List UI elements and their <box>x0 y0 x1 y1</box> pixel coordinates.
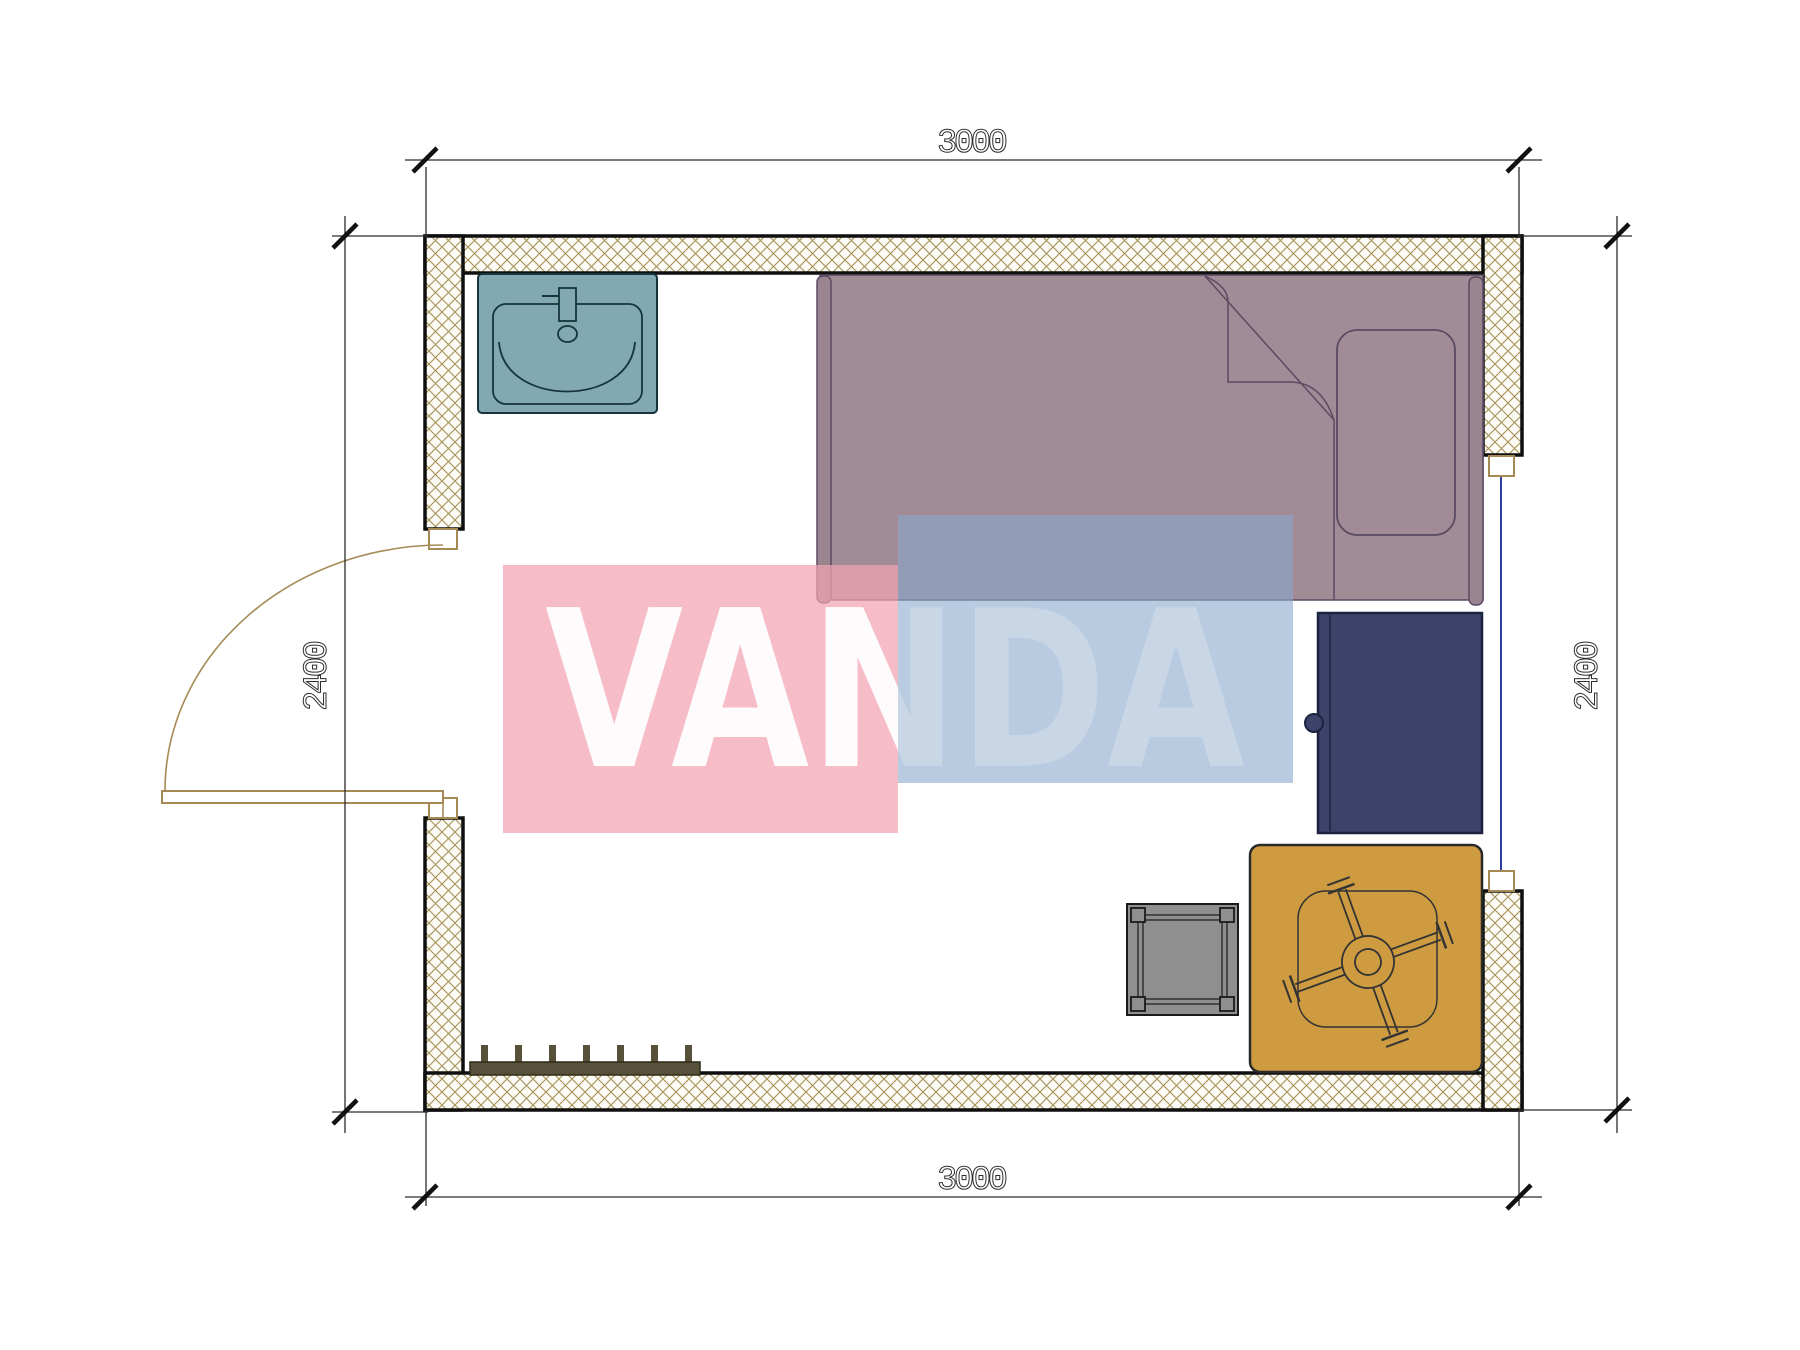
dimension-top: 3000 <box>405 125 1542 238</box>
wall-left-lower <box>425 818 463 1110</box>
dim-label-bottom: 3000 <box>937 1162 1009 1200</box>
wall-right-upper <box>1483 236 1522 455</box>
dim-label-right: 2400 <box>1570 639 1608 711</box>
radiator-fins <box>481 1045 692 1062</box>
window <box>1489 456 1514 891</box>
dimension-bottom: 3000 <box>405 1110 1542 1209</box>
wardrobe-icon <box>1305 613 1482 833</box>
stool-icon <box>1127 904 1238 1015</box>
floor-plan-drawing: 3000 3000 2400 2400 VANDA <box>0 0 1800 1350</box>
radiator-body <box>470 1062 700 1075</box>
floor-plan-canvas: 3000 3000 2400 2400 VANDA <box>0 0 1800 1350</box>
door-jamb-top <box>429 529 457 549</box>
radiator-icon <box>470 1045 700 1075</box>
wall-right-lower <box>1483 891 1522 1110</box>
wardrobe-body <box>1318 613 1482 833</box>
bed-footboard <box>817 276 831 603</box>
wardrobe-knob <box>1305 714 1323 732</box>
stool-leg <box>1131 997 1145 1011</box>
sink-faucet <box>559 288 576 321</box>
wall-bottom <box>425 1073 1522 1110</box>
bed-pillow <box>1337 330 1455 535</box>
dim-label-top: 3000 <box>937 125 1009 163</box>
watermark-text-overlay: VANDA <box>545 565 1245 818</box>
dimension-right: 2400 <box>1518 216 1632 1133</box>
bed-headboard <box>1469 277 1483 605</box>
table-icon <box>1250 845 1482 1072</box>
window-jamb-top <box>1489 456 1514 476</box>
sink-icon <box>478 274 657 413</box>
stool-leg <box>1220 908 1234 922</box>
stool-leg <box>1131 908 1145 922</box>
dimension-left: 2400 <box>299 216 428 1133</box>
wall-left-upper <box>425 236 463 529</box>
watermark: VANDA VANDA <box>503 515 1293 833</box>
stool-leg <box>1220 997 1234 1011</box>
wall-top <box>425 236 1522 273</box>
window-jamb-bottom <box>1489 871 1514 891</box>
door-leaf <box>162 791 443 803</box>
dim-label-left: 2400 <box>299 639 337 711</box>
